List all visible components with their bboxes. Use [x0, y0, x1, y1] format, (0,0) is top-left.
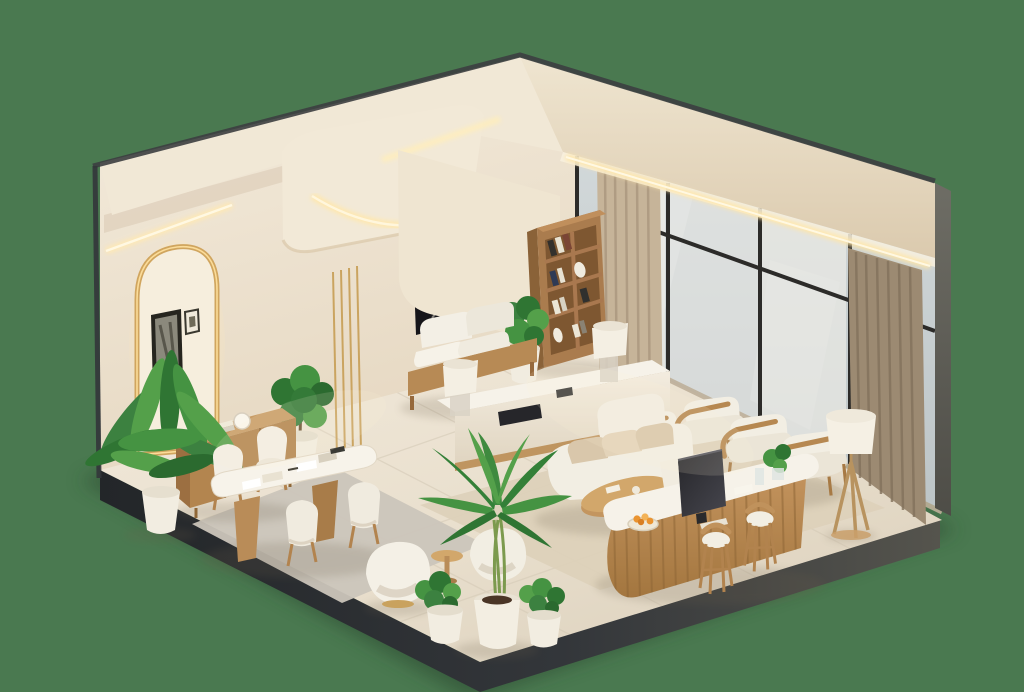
- wall-edge-right: [935, 183, 951, 516]
- render-stage: [0, 0, 1024, 692]
- table-pedestal: [234, 496, 260, 562]
- isometric-room-render: [0, 0, 1024, 692]
- framed-picture-small: [185, 310, 199, 335]
- drinking-glass: [755, 468, 764, 485]
